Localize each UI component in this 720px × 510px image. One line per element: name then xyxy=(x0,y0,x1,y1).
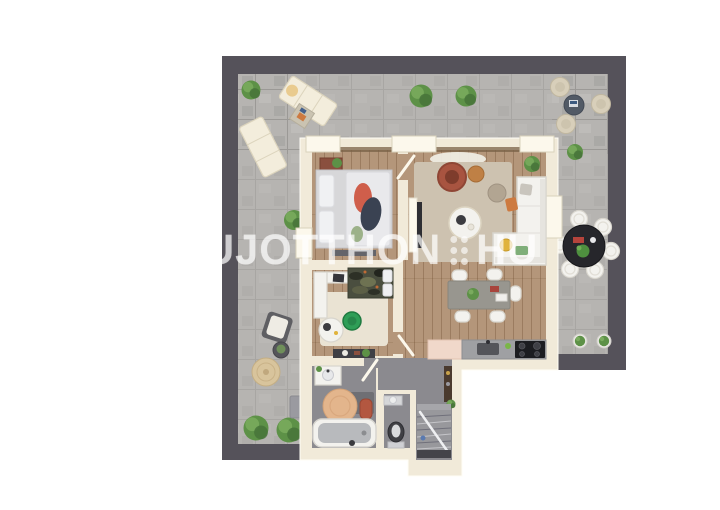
kitchen-sink xyxy=(477,343,499,355)
pillow xyxy=(383,270,392,282)
vanity xyxy=(315,366,341,385)
bath-rug xyxy=(323,389,357,423)
bed-room2 xyxy=(348,268,393,298)
tv xyxy=(417,202,422,248)
window-living-top xyxy=(520,136,554,152)
bed-bench xyxy=(332,250,376,256)
pillow xyxy=(319,211,334,243)
desk-chair-green xyxy=(343,312,361,330)
terrace-pouf xyxy=(252,358,280,386)
armchair-rust xyxy=(438,163,466,191)
laundry-basket xyxy=(360,399,372,419)
floorplan-canvas xyxy=(0,0,720,510)
side-table-yellow xyxy=(500,239,512,251)
bush-bottom-left2 xyxy=(277,418,302,443)
kitchen-cabinet-pink xyxy=(428,340,462,359)
double-bed xyxy=(316,170,392,248)
potted-plant-2 xyxy=(597,334,611,348)
potted-plant-1 xyxy=(573,334,587,348)
window-bedroom-left xyxy=(296,228,312,258)
green-bottle xyxy=(505,343,511,349)
round-table xyxy=(319,318,343,342)
staircase xyxy=(417,404,451,458)
bush-top-center2 xyxy=(456,86,477,107)
terrace-planter-table xyxy=(273,342,289,358)
bedroom xyxy=(316,158,392,256)
pouf-taupe xyxy=(488,184,506,202)
bush-right xyxy=(567,144,583,160)
toilet xyxy=(388,422,404,448)
pillow xyxy=(319,175,334,207)
bush-bottom-left1 xyxy=(244,416,269,441)
bathtub xyxy=(313,419,376,447)
sideboard xyxy=(333,349,375,358)
window-bedroom-top xyxy=(306,136,340,152)
indoor-plant xyxy=(524,156,540,172)
nightstand-plant xyxy=(332,158,342,168)
pillow-gray xyxy=(519,183,532,196)
bush-top-left xyxy=(242,81,261,100)
pouf-orange xyxy=(468,166,484,182)
bush-top-center xyxy=(410,85,433,108)
tv-console xyxy=(409,198,417,252)
window-hall-top xyxy=(392,136,436,152)
kitchen xyxy=(428,340,546,359)
floorplan-render: UJOTTHON HU xyxy=(0,0,720,510)
pillow xyxy=(383,284,392,296)
pillow-green xyxy=(515,246,528,255)
room2 xyxy=(314,268,393,358)
cooktop xyxy=(515,341,545,358)
coffee-table xyxy=(449,207,481,239)
